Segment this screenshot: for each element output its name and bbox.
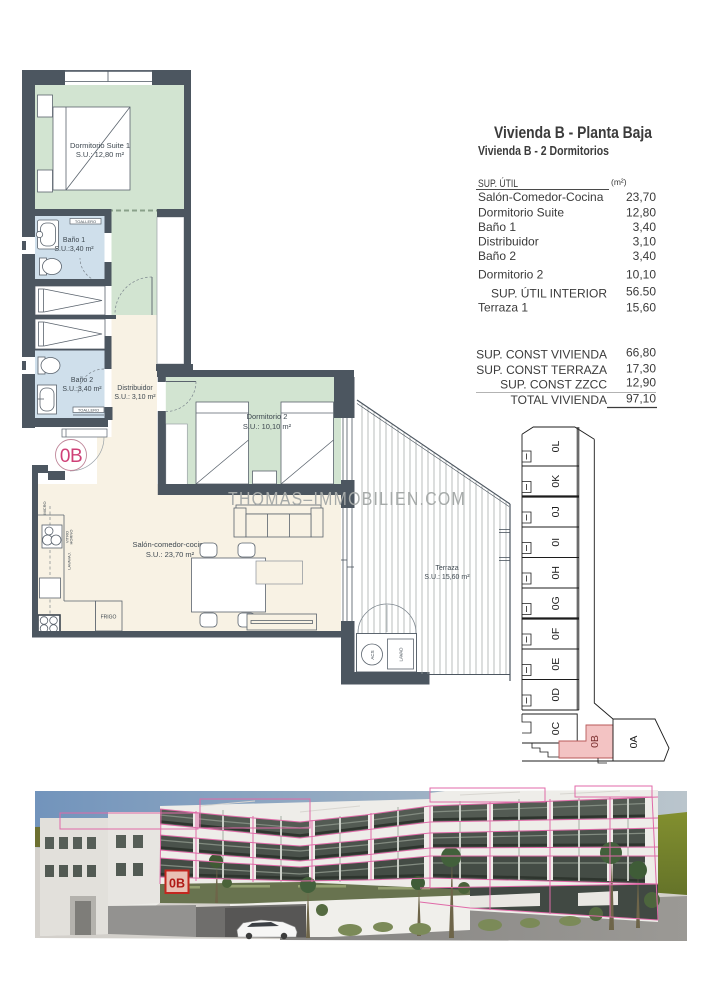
svg-text:Vivienda B - Planta Baja: Vivienda B - Planta Baja — [494, 124, 653, 142]
svg-text:FRIGO: FRIGO — [101, 615, 117, 621]
svg-text:0B: 0B — [169, 877, 185, 891]
svg-text:THOMAS–IMMOBILIEN.COM: THOMAS–IMMOBILIEN.COM — [228, 488, 466, 509]
svg-text:0I: 0I — [550, 538, 562, 547]
svg-text:SUP. CONST TERRAZA: SUP. CONST TERRAZA — [476, 363, 607, 377]
svg-text:0J: 0J — [550, 506, 562, 517]
svg-text:Baño 2: Baño 2 — [478, 249, 516, 263]
svg-text:Dormitorio 2: Dormitorio 2 — [478, 268, 544, 282]
svg-text:S.U.: 3,10 m²: S.U.: 3,10 m² — [114, 394, 156, 401]
svg-text:Vivienda B - 2 Dormitorios: Vivienda B - 2 Dormitorios — [478, 144, 609, 158]
svg-text:0F: 0F — [550, 628, 562, 640]
svg-text:12,90: 12,90 — [626, 376, 656, 390]
svg-text:SUP. CONST ZZCC: SUP. CONST ZZCC — [500, 378, 607, 392]
svg-text:3,40: 3,40 — [633, 220, 657, 234]
svg-text:Terraza: Terraza — [435, 565, 458, 572]
svg-text:S.U.: 15,60 m²: S.U.: 15,60 m² — [424, 574, 470, 581]
svg-text:97,10: 97,10 — [626, 392, 656, 406]
svg-text:SUP. ÚTIL: SUP. ÚTIL — [478, 177, 518, 190]
svg-text:0G: 0G — [550, 596, 562, 610]
svg-text:HORNO: HORNO — [69, 530, 74, 545]
svg-text:3,40: 3,40 — [633, 249, 657, 263]
svg-text:S.U.:3,40 m²: S.U.:3,40 m² — [54, 246, 94, 253]
svg-text:15,60: 15,60 — [626, 301, 656, 315]
svg-text:MICRO: MICRO — [42, 501, 47, 514]
svg-text:0B: 0B — [60, 446, 82, 467]
svg-text:0A: 0A — [628, 736, 640, 749]
svg-text:Baño 1: Baño 1 — [63, 237, 85, 244]
svg-text:Baño 1: Baño 1 — [478, 220, 516, 234]
svg-text:Dormitorio Suite: Dormitorio Suite — [478, 206, 564, 220]
svg-text:66,80: 66,80 — [626, 346, 656, 360]
svg-text:S.U.: 23,70 m²: S.U.: 23,70 m² — [146, 550, 195, 559]
svg-text:LAVAD: LAVAD — [399, 647, 404, 662]
svg-text:Baño 2: Baño 2 — [71, 377, 93, 384]
svg-text:Salón-comedor-cocina: Salón-comedor-cocina — [132, 540, 208, 549]
svg-text:0L: 0L — [550, 441, 562, 453]
svg-text:TOALLERO: TOALLERO — [78, 408, 99, 413]
svg-text:12,80: 12,80 — [626, 206, 656, 220]
svg-text:23,70: 23,70 — [626, 190, 656, 204]
svg-text:S.U.:3,40 m²: S.U.:3,40 m² — [62, 386, 102, 393]
svg-text:17,30: 17,30 — [626, 362, 656, 376]
svg-text:S.U.: 10,10 m²: S.U.: 10,10 m² — [243, 422, 292, 431]
svg-text:Dormitorio 2: Dormitorio 2 — [247, 412, 288, 421]
svg-text:Salón-Comedor-Cocina: Salón-Comedor-Cocina — [478, 190, 604, 204]
svg-text:SUP. CONST VIVIENDA: SUP. CONST VIVIENDA — [476, 348, 607, 362]
svg-text:56.50: 56.50 — [626, 285, 656, 299]
svg-text:0H: 0H — [550, 566, 562, 579]
svg-text:LAVAVAJ.: LAVAVAJ. — [67, 552, 72, 570]
svg-text:S.U.: 12,80 m²: S.U.: 12,80 m² — [76, 150, 125, 159]
svg-text:0B: 0B — [589, 735, 601, 748]
svg-text:TOALLERO: TOALLERO — [75, 219, 96, 224]
svg-text:10,10: 10,10 — [626, 268, 656, 282]
svg-text:TOTAL VIVIENDA: TOTAL VIVIENDA — [511, 393, 607, 407]
svg-text:0D: 0D — [550, 688, 562, 702]
svg-text:Dormitorio Suite 1: Dormitorio Suite 1 — [70, 141, 130, 150]
svg-text:0E: 0E — [550, 658, 562, 671]
svg-text:ACS: ACS — [370, 650, 375, 659]
svg-text:Distribuidor: Distribuidor — [117, 385, 153, 392]
svg-text:(m²): (m²) — [611, 177, 627, 187]
svg-text:Distribuidor: Distribuidor — [478, 235, 539, 249]
svg-text:0C: 0C — [550, 721, 562, 735]
svg-text:3,10: 3,10 — [633, 235, 657, 249]
svg-text:SUP. ÚTIL INTERIOR: SUP. ÚTIL INTERIOR — [491, 286, 607, 301]
svg-text:Terraza 1: Terraza 1 — [478, 301, 528, 315]
svg-text:0K: 0K — [550, 475, 562, 488]
